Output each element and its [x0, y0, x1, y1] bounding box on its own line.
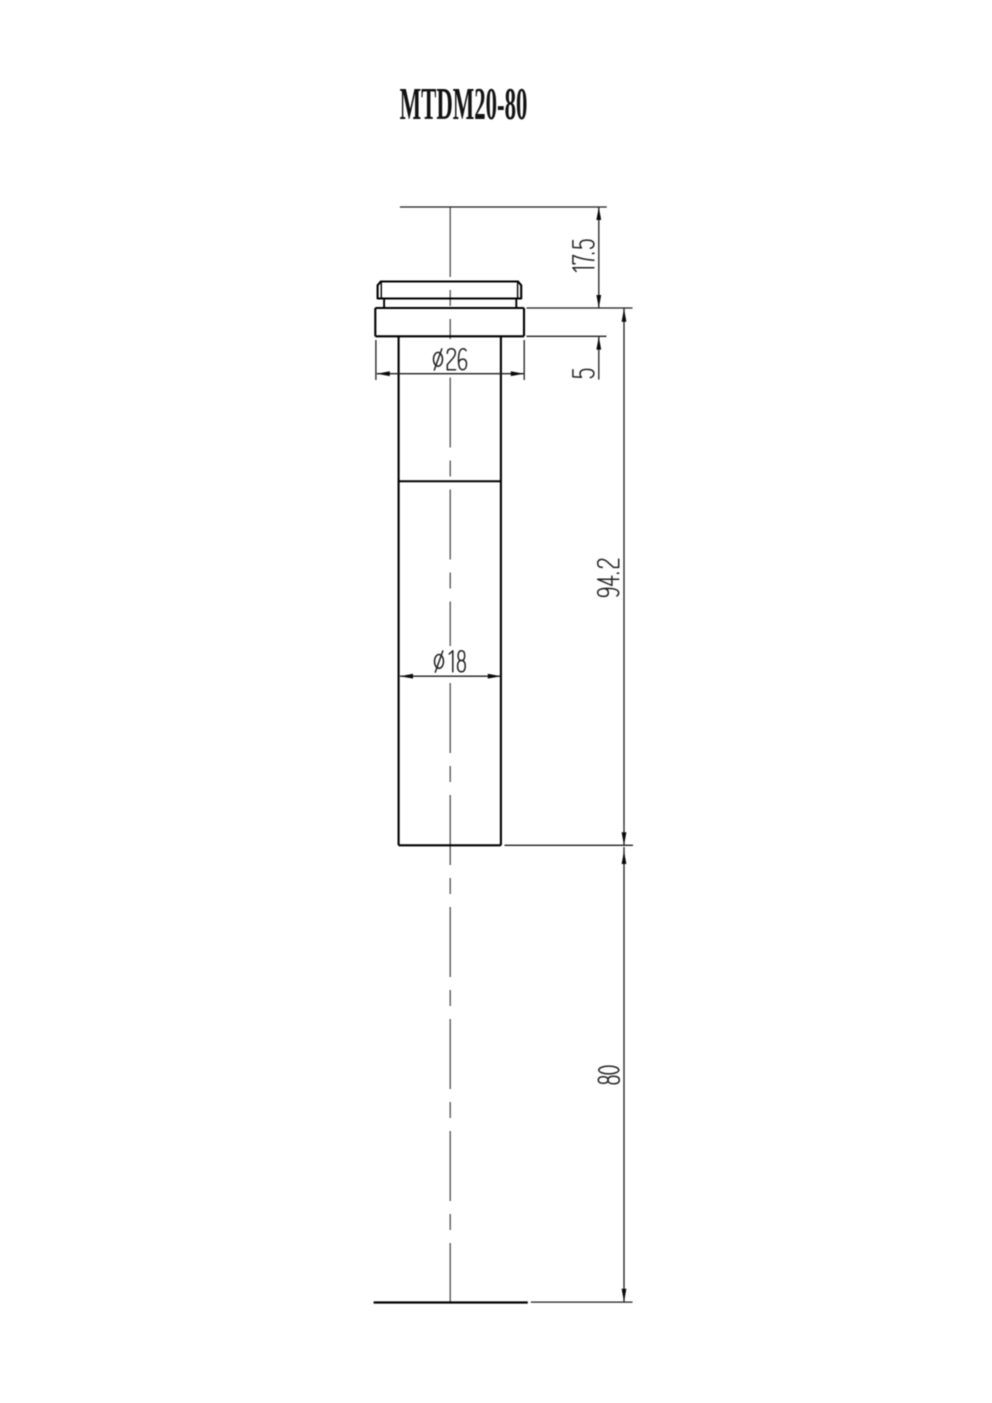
svg-text:MTDM20-80: MTDM20-80 — [400, 78, 528, 129]
